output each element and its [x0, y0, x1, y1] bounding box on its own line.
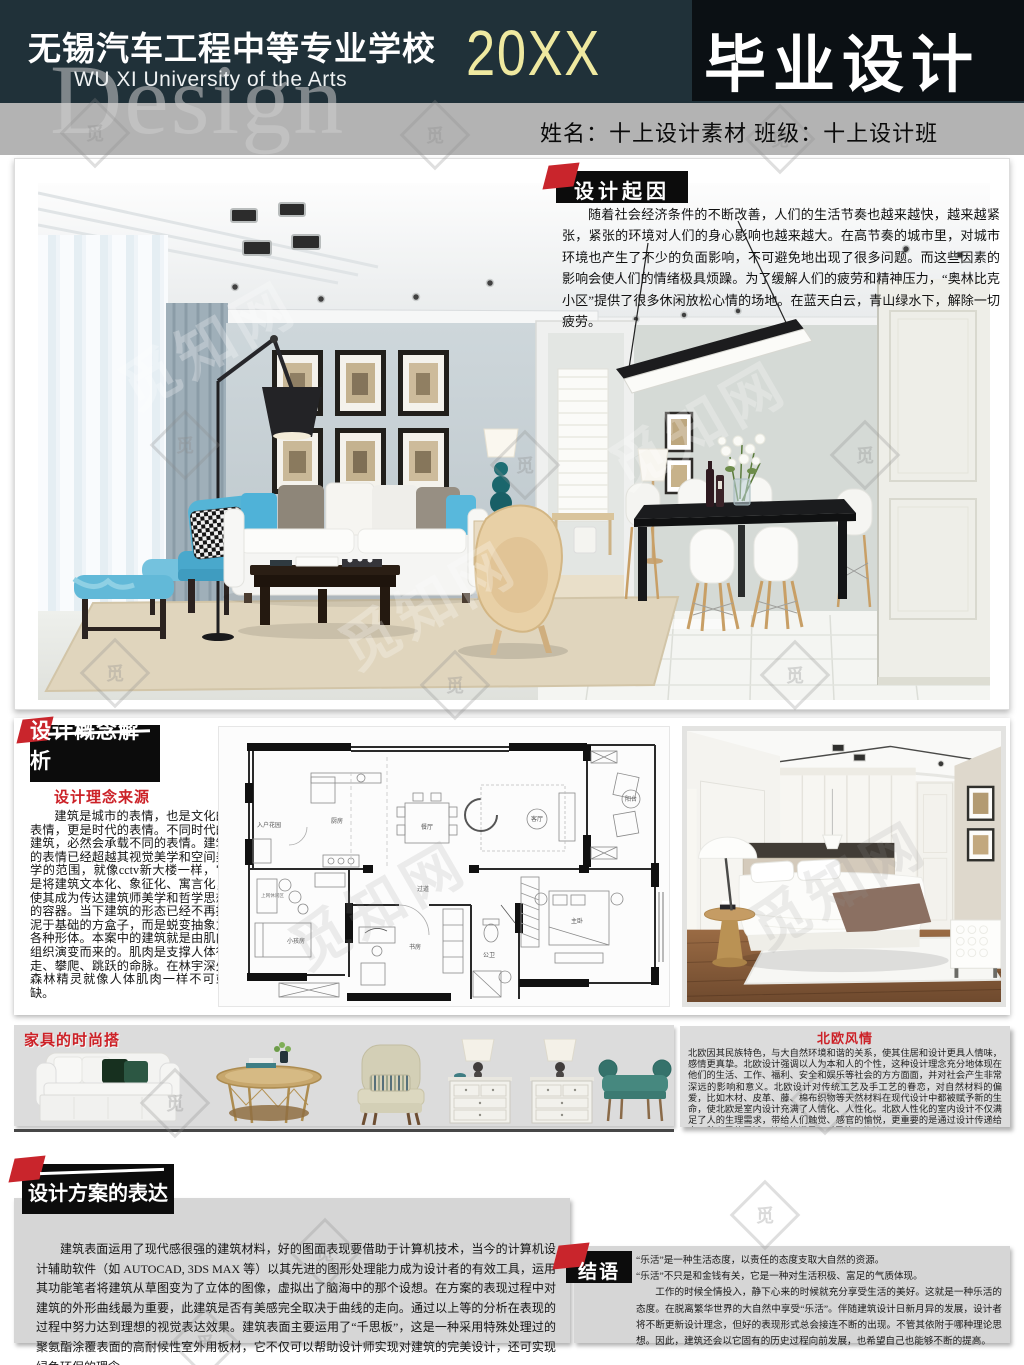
expression-section-label: 设计方案的表达: [22, 1164, 174, 1214]
strip-divider-line: [14, 1129, 674, 1132]
furniture-items: [14, 1039, 674, 1125]
svg-text:阳台: 阳台: [625, 795, 637, 803]
concept-section-label: 设计概念解析: [30, 725, 160, 782]
conclusion-block: “乐活”是一种生活态度，以责任的态度支取大自然的资源。 “乐活”不只是和金钱有关…: [574, 1246, 1010, 1343]
svg-text:过道: 过道: [417, 885, 429, 893]
plan-furniture: [253, 751, 663, 997]
graduation-design-poster: 无锡汽车工程中等专业学校 WU XI University of the Art…: [0, 0, 1024, 1365]
svg-text:书房: 书房: [409, 943, 421, 951]
nordic-paragraph: 北欧因其民族特色，与大自然环境和谐的关系，使其住居和设计更具人情味，感情更真挚。…: [688, 1048, 1002, 1127]
svg-text:客厅: 客厅: [531, 815, 543, 823]
bedroom-photo: [682, 726, 1006, 1007]
panel-wall: [878, 279, 990, 685]
svg-text:餐厅: 餐厅: [421, 823, 433, 831]
floor-plan: 入户花园 厨房 餐厅 客厅 阳台 过道 小孩房 书房 公卫 主卧 上网休闲区: [218, 726, 670, 1007]
nordic-title: 北欧风情: [680, 1028, 1010, 1047]
nordic-style-block: 北欧风情 北欧因其民族特色，与大自然环境和谐的关系，使其住居和设计更具人情味，感…: [680, 1026, 1010, 1127]
expression-paragraph: 建筑表面运用了现代感很强的建筑材料，好的图面表现要借助于计算机技术，当今的计算机…: [36, 1240, 556, 1365]
item-round-table: [217, 1042, 321, 1123]
room-labels: 入户花园 厨房 餐厅 客厅 阳台 过道 小孩房 书房 公卫 主卧 上网休闲区: [257, 795, 637, 959]
conclusion-section-label: 结语: [566, 1251, 632, 1283]
svg-text:上网休闲区: 上网休闲区: [261, 892, 284, 899]
svg-text:入户花园: 入户花园: [257, 821, 281, 829]
conclusion-line-1: “乐活”是一种生活态度，以责任的态度支取大自然的资源。: [636, 1253, 1002, 1269]
item-sofa: [36, 1053, 180, 1121]
svg-text:厨房: 厨房: [331, 817, 343, 825]
furniture-strip: 家具的时尚搭: [14, 1025, 674, 1126]
name-class-text: 姓名：十上设计素材 班级：十上设计班: [540, 116, 938, 148]
bedroom-illustration: [687, 731, 1001, 1002]
origin-section-label: 设计起因: [556, 171, 688, 203]
svg-text:公卫: 公卫: [483, 952, 495, 959]
wall-piers: [245, 743, 659, 1001]
header-band: 无锡汽车工程中等专业学校 WU XI University of the Art…: [0, 0, 1024, 103]
year-label: 20XX: [466, 16, 601, 90]
concept-source-label: 设计理念来源: [54, 786, 150, 807]
item-bench: [599, 1060, 671, 1121]
svg-text:小孩房: 小孩房: [287, 937, 305, 945]
conclusion-paragraphs: “乐活”是一种生活态度，以责任的态度支取大自然的资源。 “乐活”不只是和金钱有关…: [636, 1253, 1002, 1350]
item-nightstand-2: [530, 1039, 594, 1123]
school-name-en: WU XI University of the Arts: [74, 68, 347, 92]
conclusion-line-3: 工作的时候全情投入，静下心来的时候就充分享受生活的美好。这就是一种乐活的态度。在…: [636, 1285, 1002, 1350]
expression-block: 建筑表面运用了现代感很强的建筑材料，好的图面表现要借助于计算机技术，当今的计算机…: [14, 1198, 570, 1343]
svg-text:主卧: 主卧: [571, 917, 583, 925]
item-nightstand-1: [448, 1039, 512, 1123]
origin-paragraph: 随着社会经济条件的不断改善，人们的生活节奏也越来越快，越来越紧张，紧张的环境对人…: [562, 204, 1000, 332]
rug: [46, 597, 678, 691]
site-watermark-icon: 觅: [730, 1180, 801, 1251]
walls: [249, 745, 655, 999]
concept-panel: 设计理念来源 建筑是城市的表情，也是文化的表情，更是时代的表情。不同时代的建筑，…: [14, 718, 1010, 1015]
poster-title: 毕业设计: [704, 14, 980, 104]
concept-paragraph: 建筑是城市的表情，也是文化的表情，更是时代的表情。不同时代的建筑，必然会承载不同…: [30, 810, 228, 1000]
conclusion-line-2: “乐活”不只是和金钱有关，它是一种对生活积极、富足的气质体现。: [636, 1269, 1002, 1285]
floor-plan-drawing: 入户花园 厨房 餐厅 客厅 阳台 过道 小孩房 书房 公卫 主卧 上网休闲区: [219, 727, 669, 1006]
school-name-cn: 无锡汽车工程中等专业学校: [28, 22, 436, 70]
item-armchair: [358, 1045, 424, 1125]
